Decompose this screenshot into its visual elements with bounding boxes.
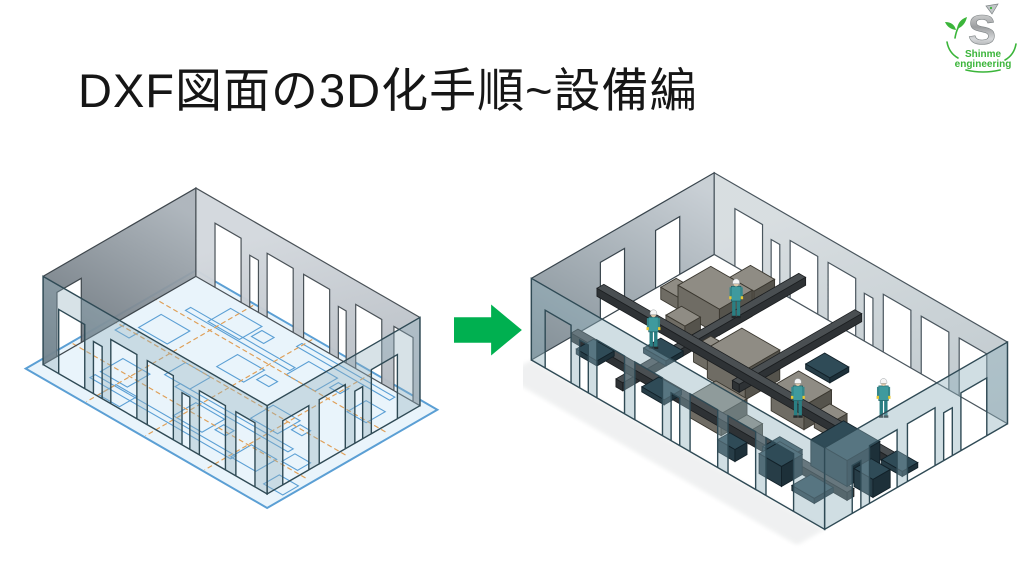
logo-sprout-icon bbox=[945, 17, 967, 38]
slide-title: DXF図面の3D化手順~設備編 bbox=[78, 52, 698, 121]
logo-text-line2: engineering bbox=[955, 59, 1012, 70]
after-room-view bbox=[523, 158, 1021, 562]
logo-underline-arc bbox=[966, 70, 1000, 72]
transform-arrow-icon bbox=[454, 301, 524, 359]
logo-right-arc bbox=[1005, 44, 1016, 60]
company-logo: S Shinme engineering bbox=[940, 2, 1022, 74]
logo-left-arc bbox=[947, 42, 958, 58]
before-room-view bbox=[10, 158, 442, 514]
